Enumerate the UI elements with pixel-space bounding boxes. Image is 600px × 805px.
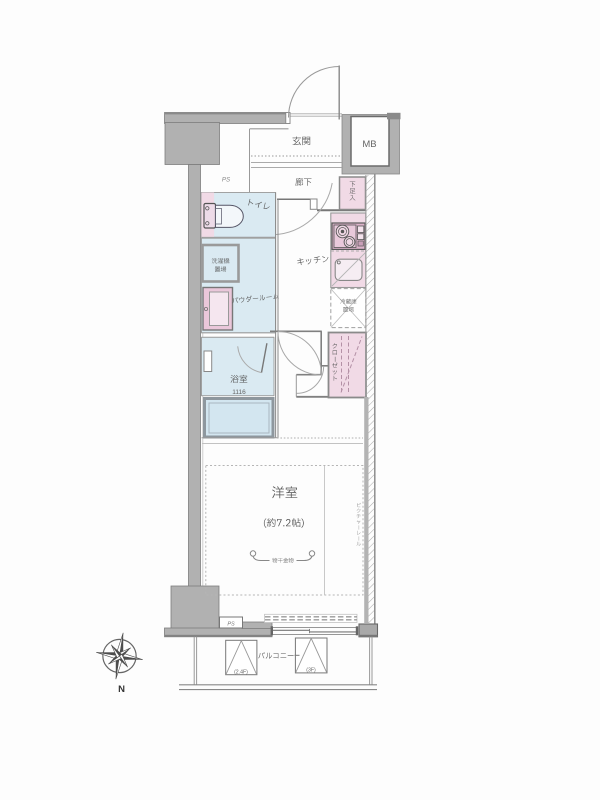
svg-text:PS: PS xyxy=(227,622,235,628)
svg-text:1116: 1116 xyxy=(232,389,246,396)
svg-text:(2.4F): (2.4F) xyxy=(234,669,248,675)
svg-text:N: N xyxy=(118,684,125,695)
svg-text:(3F): (3F) xyxy=(306,667,316,673)
svg-text:PS: PS xyxy=(222,177,231,184)
svg-text:MB: MB xyxy=(362,139,376,150)
